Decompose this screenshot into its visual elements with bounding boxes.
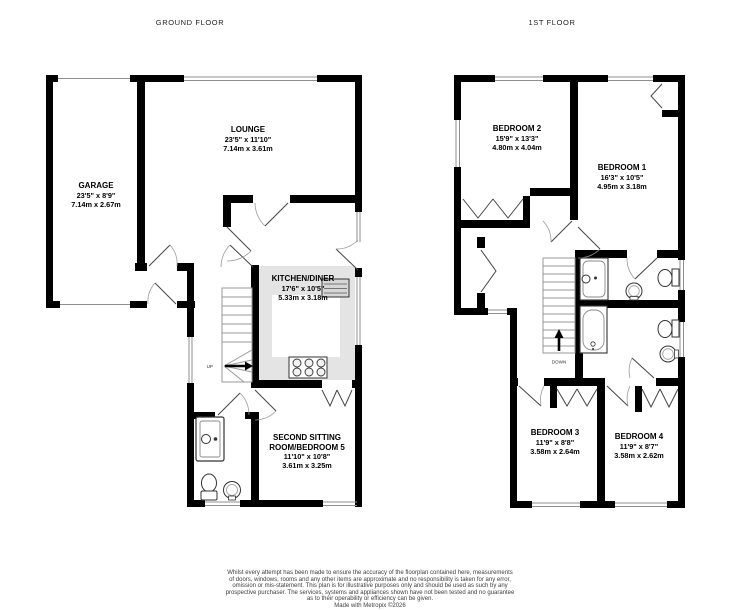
floorplan-drawing: UP: [0, 0, 730, 609]
staircase-up: UP: [207, 288, 253, 382]
disclaimer-text: Whilst every attempt has been made to en…: [170, 570, 570, 610]
bathroom-basin-icon: [660, 346, 679, 362]
ensuite-toilet-icon: [658, 269, 679, 287]
sink-unit-icon: [196, 417, 224, 461]
ground-floor-title: GROUND FLOOR: [120, 18, 260, 27]
bathroom-toilet-icon: [658, 320, 679, 338]
ensuite-basin-icon: [626, 283, 642, 300]
basin-icon: [224, 482, 241, 501]
room-label-garage: GARAGE 23'5" x 8'9" 7.14m x 2.67m: [41, 181, 151, 209]
room-label-bedroom-1: BEDROOM 1 16'3" x 10'5" 4.95m x 3.18m: [567, 163, 677, 191]
stairs-down-label: DOWN: [552, 360, 567, 365]
floorplan-page: { "titles": { "ground": "GROUND FLOOR", …: [0, 0, 730, 609]
staircase-down: DOWN: [543, 258, 575, 365]
first-floor-title: 1ST FLOOR: [482, 18, 622, 27]
stairs-up-label: UP: [207, 364, 213, 369]
room-label-lounge: LOUNGE 23'5" x 11'10" 7.14m x 3.61m: [193, 125, 303, 153]
toilet-icon: [201, 474, 217, 500]
room-label-bedroom-2: BEDROOM 2 15'9" x 13'3" 4.80m x 4.04m: [462, 124, 572, 152]
room-label-bedroom-4: BEDROOM 4 11'9" x 8'7" 3.58m x 2.62m: [584, 432, 694, 460]
room-label-second-sitting-room: SECOND SITTING ROOM/BEDROOM 5 11'10" x 1…: [252, 433, 362, 470]
hob-icon: [289, 357, 327, 378]
bathtub-icon: [580, 306, 607, 353]
first-fixtures: [580, 258, 679, 362]
room-label-kitchen-diner: KITCHEN/DINER 17'6" x 10'5" 5.33m x 3.18…: [248, 274, 358, 302]
shower-tray-icon: [580, 258, 608, 300]
